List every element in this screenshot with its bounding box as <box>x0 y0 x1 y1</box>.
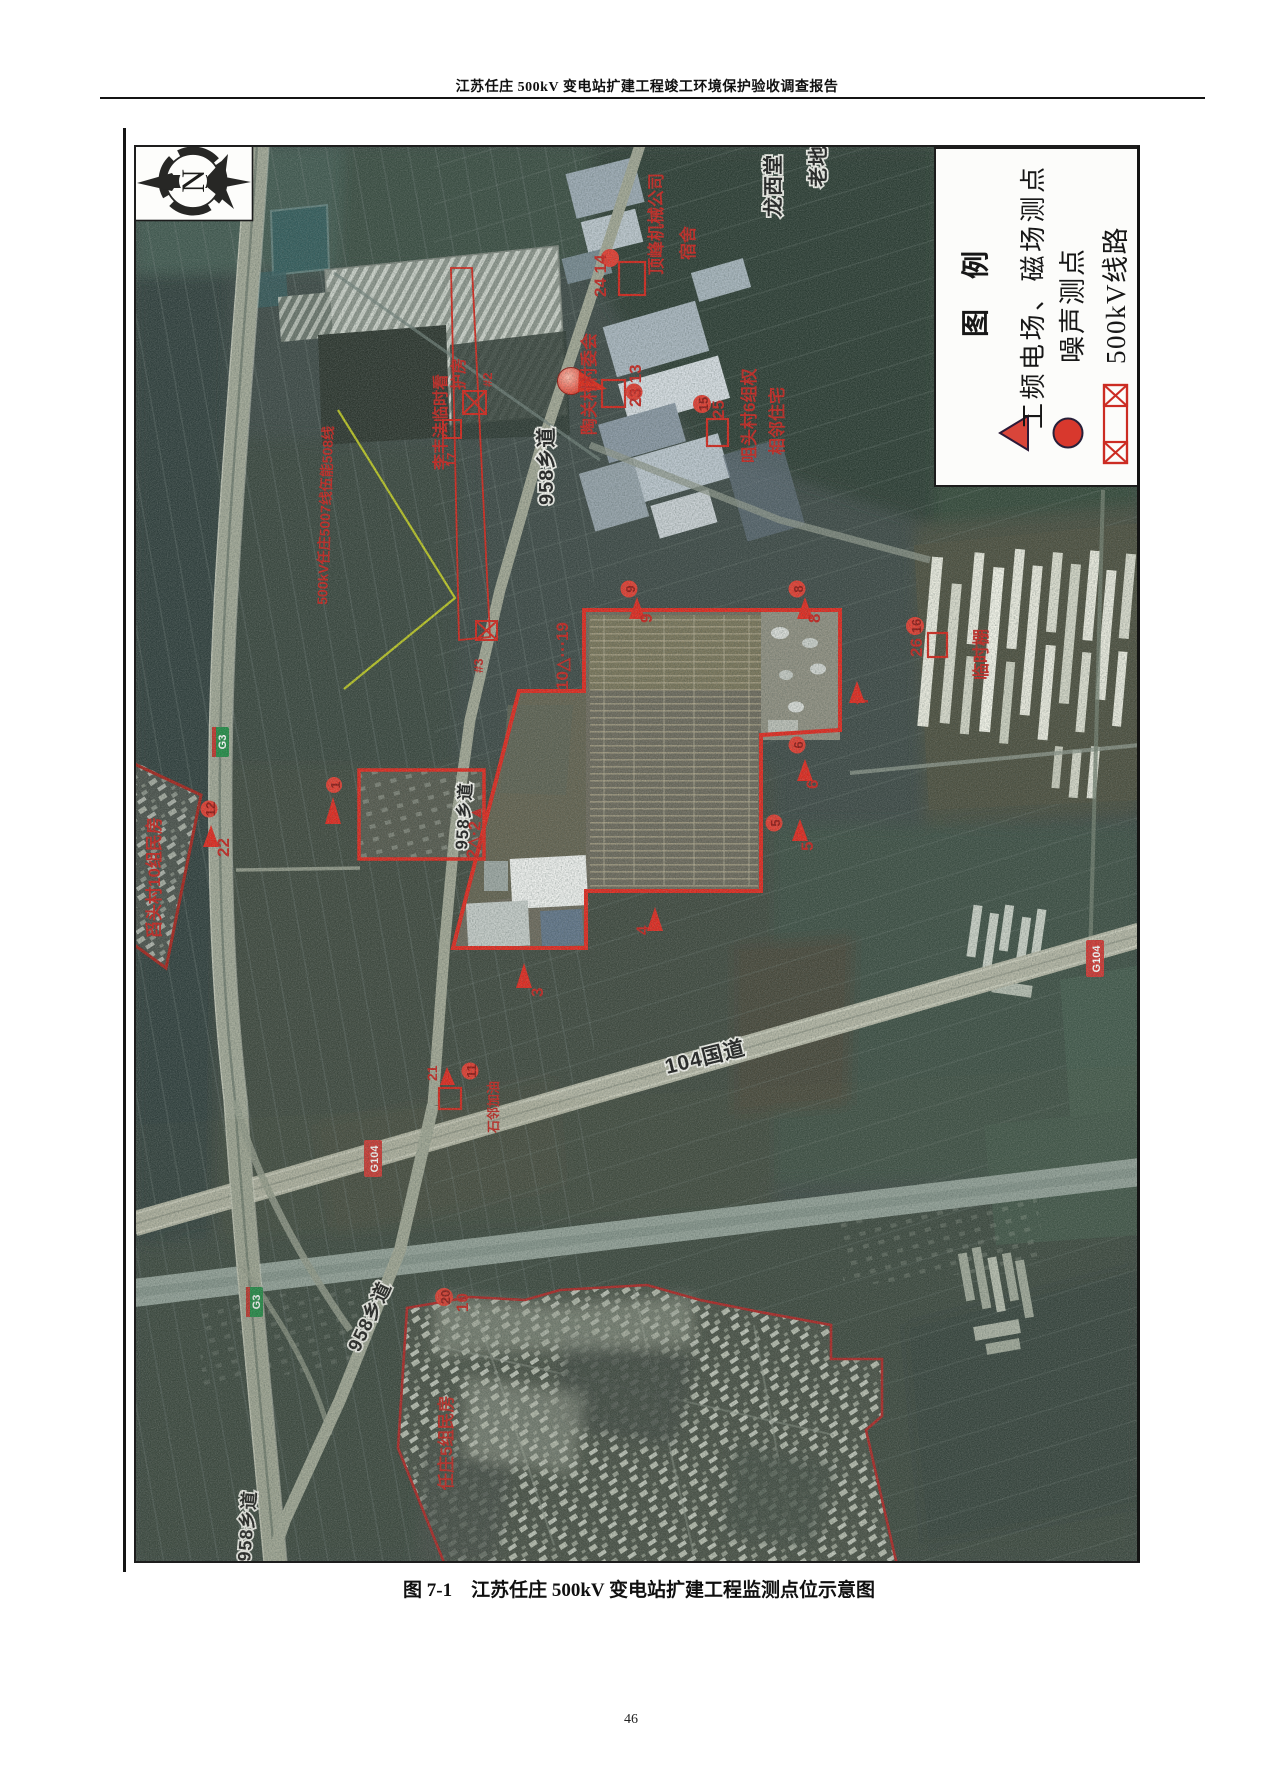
svg-text:N: N <box>176 169 212 193</box>
svg-text:500kV线路: 500kV线路 <box>1101 226 1131 364</box>
svg-text:工频电场、磁场测点: 工频电场、磁场测点 <box>1019 163 1048 429</box>
svg-text:噪声测点: 噪声测点 <box>1058 247 1088 363</box>
svg-text:图例: 图例 <box>960 221 992 337</box>
